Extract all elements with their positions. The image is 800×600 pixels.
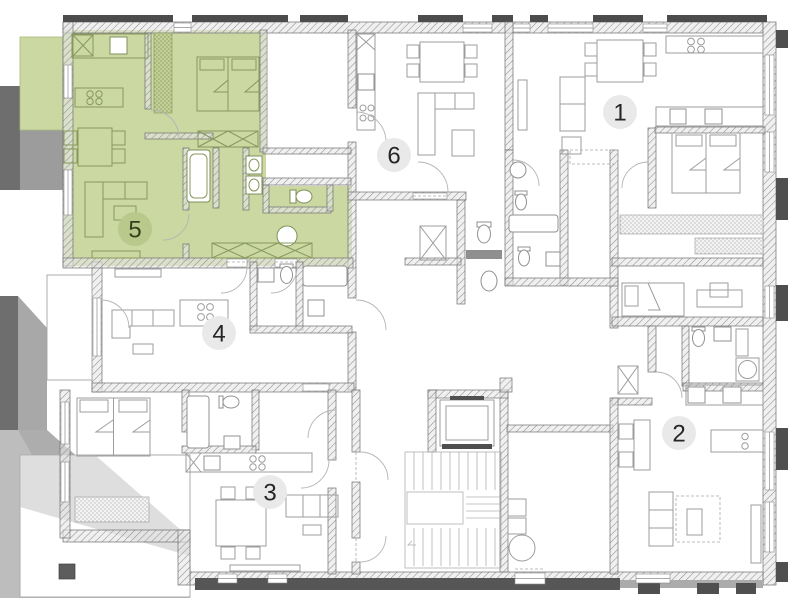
apartment-4-balcony — [47, 275, 92, 380]
unit-label-3[interactable]: 3 — [263, 480, 276, 507]
unit-badge-6[interactable]: 6 — [377, 138, 411, 172]
toilet-icon — [219, 396, 239, 408]
wardrobe — [154, 33, 172, 113]
unit-badge-2[interactable]: 2 — [662, 416, 696, 450]
unit-label-6[interactable]: 6 — [387, 143, 400, 170]
sink-icon — [204, 456, 220, 470]
wardrobe — [695, 238, 763, 254]
bath-bench — [466, 250, 502, 259]
sink-icon — [688, 387, 705, 403]
floor-plan-page: 1 2 3 4 5 6 — [0, 0, 800, 600]
floor-plan-canvas: 1 2 3 4 5 6 — [0, 0, 800, 600]
toilet-icon — [477, 222, 491, 243]
sink-icon — [670, 109, 686, 124]
unit-label-5[interactable]: 5 — [128, 217, 141, 244]
terrace-post — [59, 564, 75, 579]
sink-icon — [358, 74, 374, 90]
unit-label-2[interactable]: 2 — [672, 421, 685, 448]
bathtub-icon — [187, 396, 209, 448]
bathtub-icon — [509, 215, 558, 232]
unit-badge-4[interactable]: 4 — [202, 316, 236, 350]
sink-icon — [481, 271, 497, 291]
sink-icon — [110, 37, 127, 54]
wardrobe — [75, 497, 149, 522]
sink-icon — [714, 327, 731, 341]
washer-icon — [510, 162, 526, 178]
toilet-icon — [515, 191, 527, 210]
apartment-5-balcony — [20, 37, 63, 130]
bathtub-icon — [303, 266, 347, 286]
toilet-icon — [290, 190, 312, 203]
unit-badge-1[interactable]: 1 — [603, 95, 637, 129]
cooktop — [705, 109, 722, 124]
wardrobe — [620, 215, 763, 234]
unit-label-4[interactable]: 4 — [212, 321, 225, 348]
cooktop — [723, 387, 741, 403]
unit-badge-5-highlighted[interactable]: 5 — [118, 212, 152, 246]
toilet-icon — [518, 247, 530, 266]
toilet-icon — [692, 327, 705, 347]
sink-icon — [546, 252, 560, 266]
sink-icon — [224, 436, 240, 449]
bottom-facade-shadow — [195, 578, 620, 590]
washer-icon — [308, 300, 324, 316]
terrace — [20, 455, 190, 597]
sink-icon — [258, 268, 274, 282]
toilet-icon — [280, 264, 293, 284]
unit-label-1[interactable]: 1 — [613, 100, 626, 127]
unit-badge-3[interactable]: 3 — [253, 475, 287, 509]
